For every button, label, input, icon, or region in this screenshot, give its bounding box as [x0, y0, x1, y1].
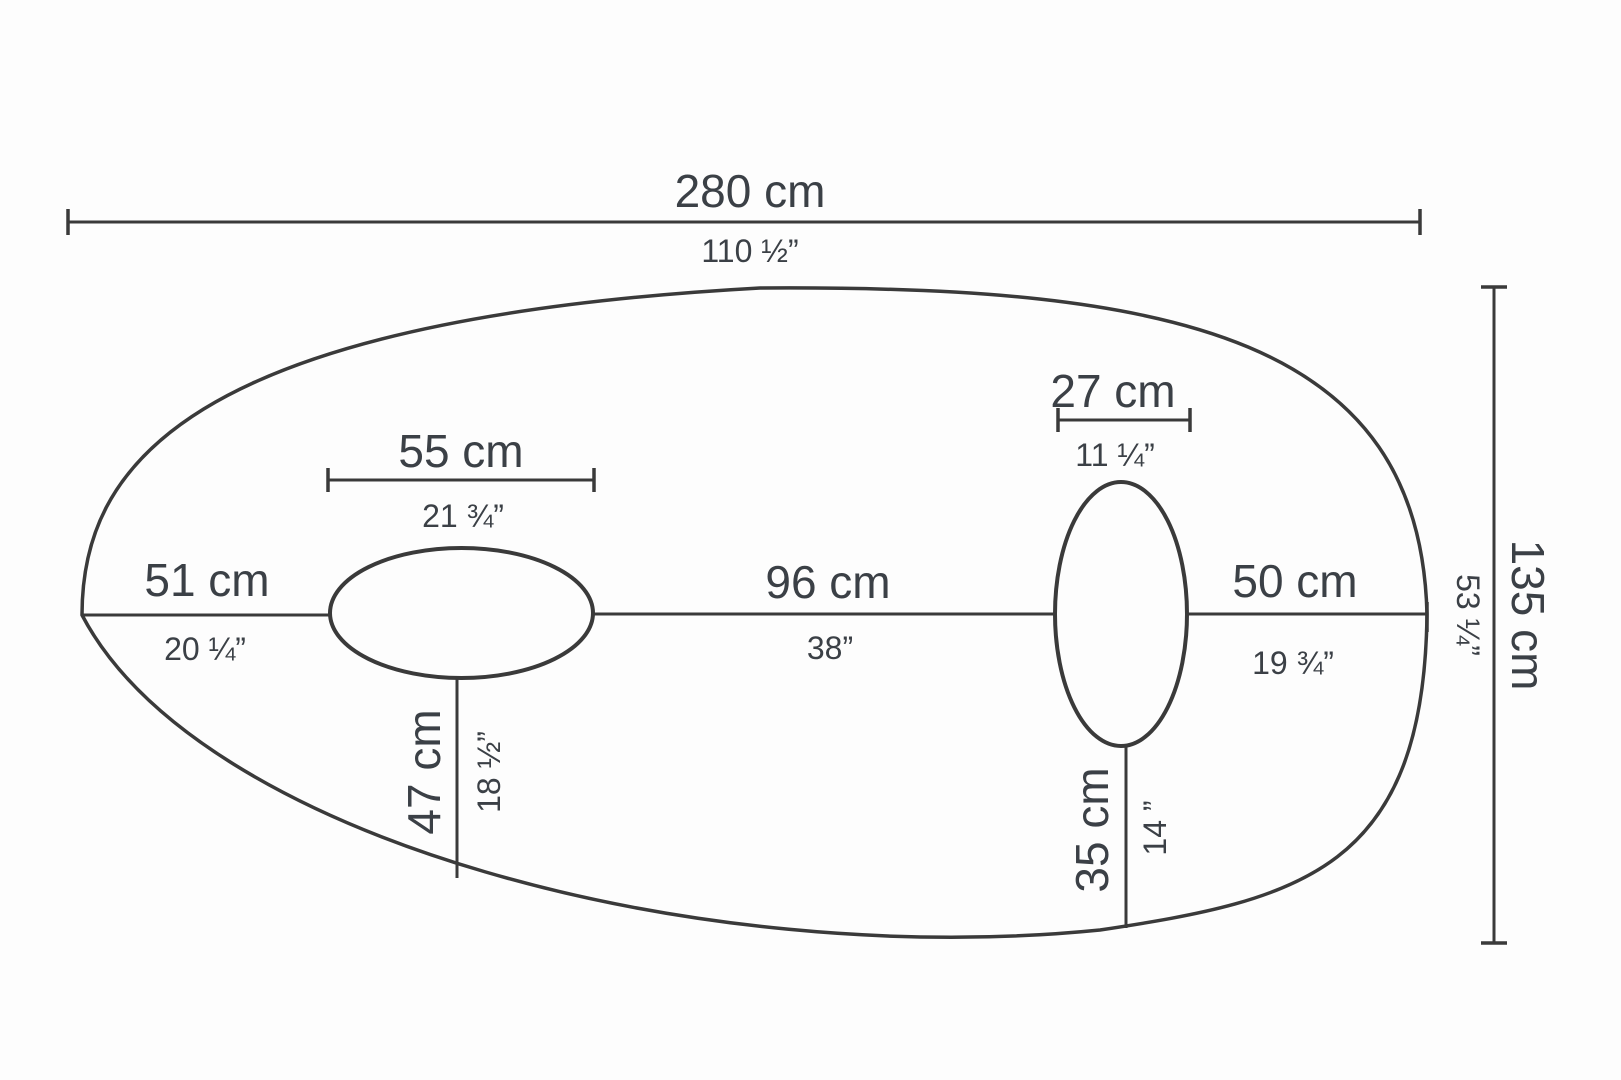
overall-width-inch-label: 110 ½”: [701, 233, 798, 269]
hole1-depth-inch-label: 18 ½”: [471, 731, 507, 813]
hole1-depth-cm-label: 47 cm: [398, 709, 450, 834]
diagram-canvas: 280 cm 110 ½” 135 cm 53 ¼” 51 cm 20 ¼” 9…: [0, 0, 1621, 1080]
hole2-outline: [1055, 482, 1187, 746]
left-edge-to-hole1-cm-label: 51 cm: [144, 554, 269, 606]
hole1-to-hole2-cm-label: 96 cm: [765, 556, 890, 608]
overall-height-cm-label: 135 cm: [1502, 540, 1554, 691]
hole2-width-inch-label: 11 ¼”: [1075, 437, 1154, 473]
hole2-to-right-edge-cm-label: 50 cm: [1232, 555, 1357, 607]
hole1-width-cm-label: 55 cm: [398, 425, 523, 477]
hole1-outline: [330, 548, 593, 678]
hole1-width-inch-label: 21 ¾”: [422, 498, 504, 534]
measurement-diagram: 280 cm 110 ½” 135 cm 53 ¼” 51 cm 20 ¼” 9…: [0, 0, 1621, 1080]
hole2-to-right-edge-inch-label: 19 ¾”: [1252, 645, 1334, 681]
overall-height-inch-label: 53 ¼”: [1450, 574, 1486, 656]
hole2-depth-inch-label: 14 ”: [1137, 800, 1173, 855]
overall-width-cm-label: 280 cm: [675, 165, 826, 217]
hole2-width-cm-label: 27 cm: [1050, 365, 1175, 417]
hole1-to-hole2-inch-label: 38”: [807, 630, 853, 666]
hole2-depth-cm-label: 35 cm: [1066, 767, 1118, 892]
left-edge-to-hole1-inch-label: 20 ¼”: [164, 631, 246, 667]
